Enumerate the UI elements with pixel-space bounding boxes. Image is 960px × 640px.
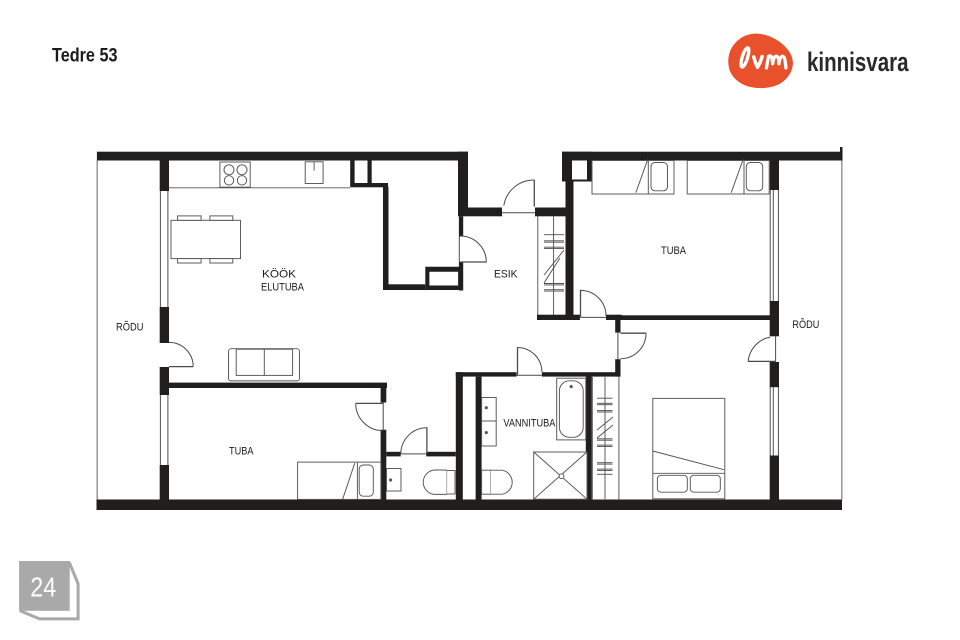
svg-text:RÕDU: RÕDU bbox=[116, 321, 144, 334]
svg-text:24: 24 bbox=[30, 571, 56, 602]
svg-text:ELUTUBA: ELUTUBA bbox=[261, 281, 305, 293]
svg-text:Tedre 53: Tedre 53 bbox=[52, 44, 118, 66]
svg-text:VANNITUBA: VANNITUBA bbox=[503, 417, 556, 429]
svg-text:ESIK: ESIK bbox=[494, 269, 518, 281]
svg-text:TUBA: TUBA bbox=[229, 446, 254, 458]
svg-text:KÖÖK: KÖÖK bbox=[262, 269, 297, 281]
svg-text:kinnisvara: kinnisvara bbox=[807, 47, 909, 77]
svg-text:RÕDU: RÕDU bbox=[792, 318, 819, 331]
svg-text:TUBA: TUBA bbox=[661, 245, 687, 257]
